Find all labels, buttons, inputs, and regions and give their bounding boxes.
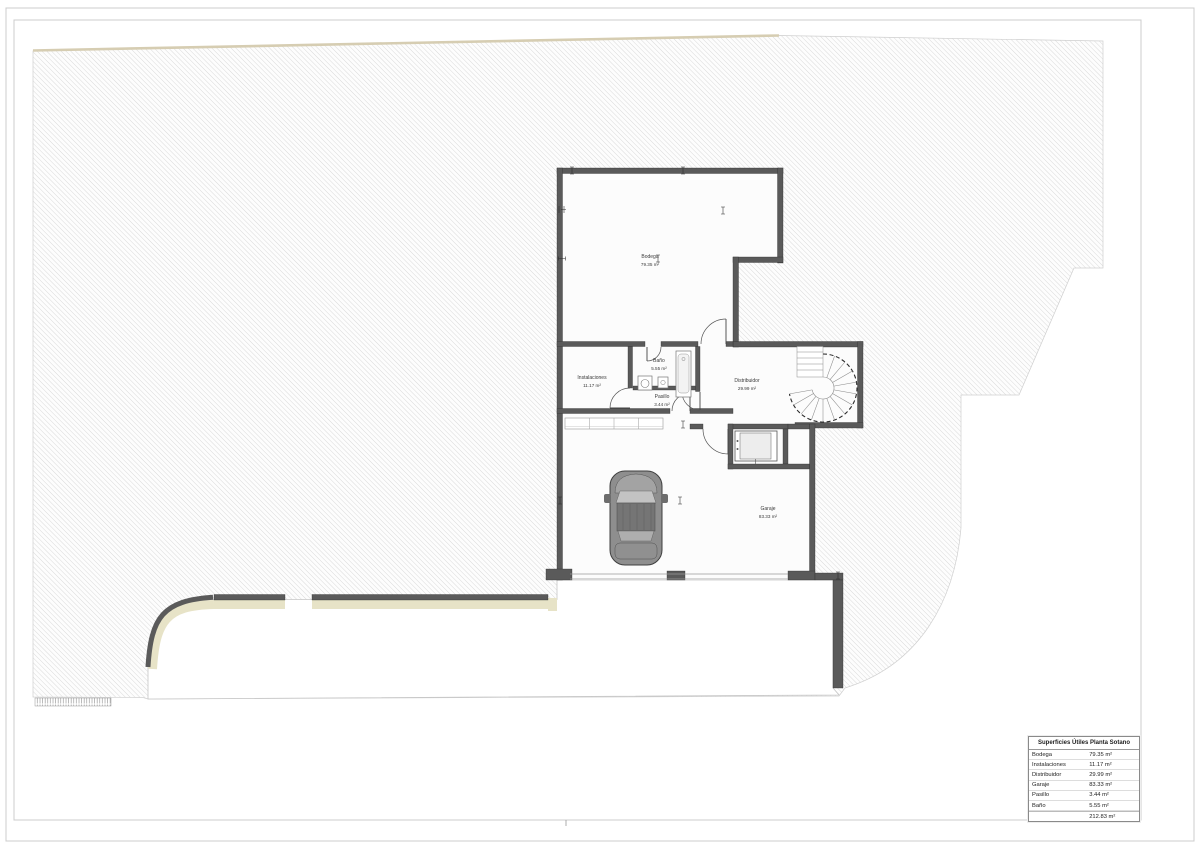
- table-row: Garaje83.33 m²: [1029, 781, 1139, 791]
- row-label: Baño: [1032, 803, 1046, 809]
- boundary-tick-strip: [35, 698, 111, 706]
- areas-table: Superficies Útiles Planta Sotano Bodega7…: [1028, 736, 1140, 822]
- car-mirror: [604, 494, 611, 503]
- room-label-bano: Baño: [653, 358, 665, 364]
- row-value: 5.55 m²: [1089, 803, 1136, 809]
- car-mirror: [661, 494, 668, 503]
- table-row: Instalaciones11.17 m²: [1029, 760, 1139, 770]
- table-row: Bodega79.35 m²: [1029, 750, 1139, 760]
- table-row: Pasillo3.44 m²: [1029, 791, 1139, 801]
- table-row: Distribuidor29.99 m²: [1029, 770, 1139, 780]
- floorplan-svg: Bodega 79.35 m² Instalaciones 11.17 m² B…: [0, 0, 1200, 849]
- row-value: 79.35 m²: [1089, 752, 1136, 758]
- areas-table-header: Superficies Útiles Planta Sotano: [1029, 737, 1139, 750]
- room-label-pasillo: Pasillo: [655, 394, 670, 400]
- sink: [658, 377, 668, 388]
- room-area-distribuidor: 29.99 m²: [738, 386, 757, 391]
- row-label: Pasillo: [1032, 792, 1049, 798]
- room-area-garaje: 83.33 m²: [759, 514, 778, 519]
- row-value: 11.17 m²: [1089, 762, 1136, 768]
- row-value: 3.44 m²: [1089, 792, 1136, 798]
- room-area-bano: 5.55 m²: [651, 366, 667, 371]
- garage-closets: [565, 418, 663, 429]
- room-area-pasillo: 3.44 m²: [654, 402, 670, 407]
- room-label-instalaciones: Instalaciones: [577, 375, 607, 381]
- table-row-total: 212.83 m²: [1029, 811, 1139, 821]
- row-value: 29.99 m²: [1089, 772, 1136, 778]
- elevator: [735, 431, 777, 464]
- room-area-instalaciones: 11.17 m²: [583, 383, 601, 388]
- row-label: Instalaciones: [1032, 762, 1066, 768]
- car-top-view: [604, 471, 668, 565]
- table-row: Baño5.55 m²: [1029, 801, 1139, 811]
- row-label: Bodega: [1032, 752, 1052, 758]
- toilet: [638, 376, 652, 390]
- row-label: Distribuidor: [1032, 772, 1061, 778]
- room-label-garaje: Garaje: [760, 506, 775, 512]
- row-value: 212.83 m²: [1089, 814, 1136, 820]
- drawing-sheet: Bodega 79.35 m² Instalaciones 11.17 m² B…: [0, 0, 1200, 849]
- row-label: Garaje: [1032, 782, 1049, 788]
- room-label-bodega: Bodega: [641, 254, 658, 260]
- room-area-bodega: 79.35 m²: [641, 262, 660, 267]
- room-label-distribuidor: Distribuidor: [734, 378, 760, 384]
- row-value: 83.33 m²: [1089, 782, 1136, 788]
